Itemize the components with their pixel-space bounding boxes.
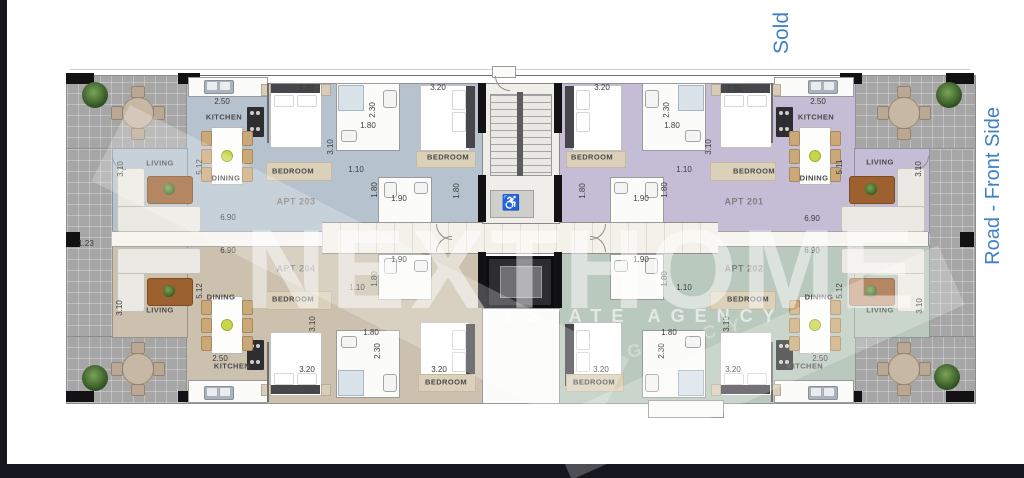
shower-icon <box>338 85 364 111</box>
shower-icon <box>678 85 704 111</box>
chair-icon <box>201 318 212 333</box>
dim-label: 6.90 <box>220 247 236 255</box>
terrace-chair-icon <box>111 362 123 376</box>
toilet-icon <box>645 90 659 108</box>
terrace-chair-icon <box>877 106 889 120</box>
room-label: LIVING <box>866 158 893 166</box>
terrace-chair-icon <box>919 106 931 120</box>
room-label: BEDROOM <box>573 378 615 386</box>
dim-label: 2.30 <box>658 343 666 359</box>
chair-icon <box>789 131 800 146</box>
wheelchair-icon: ♿ <box>502 196 521 211</box>
basin-icon <box>614 260 628 272</box>
room-label: LIVING <box>146 306 173 314</box>
chair-icon <box>830 336 841 351</box>
dim-label: 1.80 <box>664 122 680 130</box>
basin-icon <box>685 336 701 348</box>
wall-block <box>960 232 974 247</box>
toilet-icon <box>383 90 397 108</box>
terrace-chair-icon <box>897 128 911 140</box>
dim-label: 1.80 <box>371 182 379 198</box>
plate-icon <box>221 319 233 331</box>
apartment-label: APT 202 <box>724 265 763 274</box>
dim-label: 1.80 <box>661 182 669 198</box>
dim-label: 1.90 <box>391 256 407 264</box>
basin-icon <box>341 336 357 348</box>
room-label: BEDROOM <box>733 167 775 175</box>
terrace-chair-icon <box>111 106 123 120</box>
toilet-icon <box>383 374 397 392</box>
pillow-icon <box>747 373 767 385</box>
interior-wall <box>267 342 269 402</box>
shower-icon <box>338 370 364 396</box>
pillow-icon <box>452 112 466 132</box>
sofa-icon <box>841 248 925 274</box>
basin-icon <box>414 182 428 194</box>
pillow-icon <box>747 95 767 107</box>
dim-label: 3.20 <box>725 366 741 374</box>
toilet-icon <box>645 374 659 392</box>
room-label: DINING <box>212 174 241 182</box>
bed-headboard <box>270 385 320 394</box>
sofa-icon <box>841 206 925 232</box>
dim-label: 1.80 <box>360 122 376 130</box>
dim-label: 3.20 <box>298 85 314 93</box>
chair-icon <box>242 300 253 315</box>
dim-label: 2.30 <box>369 102 377 118</box>
dim-label: 1.80 <box>371 271 379 287</box>
room-label: KITCHEN <box>798 113 834 121</box>
nightstand-icon <box>711 384 721 396</box>
dim-label: 1.80 <box>661 271 669 287</box>
plant-icon <box>163 183 175 195</box>
basin-icon <box>685 130 701 142</box>
dim-label: 3.10 <box>117 161 125 177</box>
chair-icon <box>830 300 841 315</box>
tree-icon <box>934 364 960 390</box>
interior-wall <box>771 83 773 143</box>
dim-label: 3.20 <box>299 366 315 374</box>
pillow-icon <box>452 330 466 350</box>
room-label: DINING <box>207 293 236 301</box>
kitchen-sink-icon <box>204 80 234 94</box>
dim-label: 1.10 <box>676 284 692 292</box>
chair-icon <box>201 336 212 351</box>
basin-icon <box>341 130 357 142</box>
stair-rail <box>517 92 523 176</box>
room-label: BEDROOM <box>425 378 467 386</box>
plant-icon <box>163 285 175 297</box>
dim-label: 3.20 <box>431 366 447 374</box>
bed-headboard <box>466 86 475 148</box>
terrace-chair-icon <box>131 342 145 354</box>
road-front-side-label: Road - Front Side <box>982 107 1005 265</box>
room-label: BEDROOM <box>571 153 613 161</box>
wall-block <box>66 391 94 402</box>
dim-label: 5.12 <box>196 159 204 175</box>
dim-label: 3.10 <box>309 316 317 332</box>
pillow-icon <box>297 95 317 107</box>
apartment-label: APT 201 <box>724 198 763 207</box>
interior-wall <box>771 342 773 402</box>
dim-label: 3.10 <box>116 300 124 316</box>
plate-icon <box>809 319 821 331</box>
dim-label: 2.50 <box>810 98 826 106</box>
pillow-icon <box>576 330 590 350</box>
dim-label: 3.20 <box>593 366 609 374</box>
terrace-chair-icon <box>131 128 145 140</box>
terrace-chair-icon <box>153 362 165 376</box>
pillow-icon <box>274 95 294 107</box>
chair-icon <box>789 167 800 182</box>
pillow-icon <box>452 90 466 110</box>
chair-icon <box>242 336 253 351</box>
pillow-icon <box>576 112 590 132</box>
elevator-car <box>500 266 542 298</box>
plate-icon <box>809 150 821 162</box>
wall-block <box>478 175 486 222</box>
nightstand-icon <box>321 384 331 396</box>
dim-label: 1.10 <box>349 284 365 292</box>
chair-icon <box>789 318 800 333</box>
room-label: BEDROOM <box>272 295 314 303</box>
room-label: DINING <box>805 293 834 301</box>
kitchen-sink-icon <box>204 386 234 400</box>
pillow-icon <box>724 95 744 107</box>
kitchen-sink-icon <box>808 80 838 94</box>
kitchen-sink-icon <box>808 386 838 400</box>
bed-headboard <box>720 385 770 394</box>
plant-icon <box>865 183 877 195</box>
terrace-chair-icon <box>897 86 911 98</box>
tree-icon <box>82 365 108 391</box>
dim-label: 2.50 <box>214 98 230 106</box>
wall-block <box>554 83 562 133</box>
dim-label: 6.90 <box>804 247 820 255</box>
terrace-table-icon <box>122 97 154 129</box>
room-label: BEDROOM <box>727 295 769 303</box>
terrace-chair-icon <box>131 86 145 98</box>
room-label: KITCHEN <box>787 362 823 370</box>
chair-icon <box>789 300 800 315</box>
nightstand-icon <box>321 84 331 96</box>
tree-icon <box>936 82 962 108</box>
wall-block <box>478 252 486 308</box>
shower-icon <box>678 370 704 396</box>
room-label: KITCHEN <box>214 362 250 370</box>
dim-label: 2.30 <box>374 343 382 359</box>
terrace-chair-icon <box>897 342 911 354</box>
corridor <box>322 222 718 254</box>
dim-label: 3.10 <box>723 316 731 332</box>
basin-icon <box>614 182 628 194</box>
chair-icon <box>242 318 253 333</box>
pillow-icon <box>576 90 590 110</box>
apartment-label: APT 203 <box>276 198 315 207</box>
terrace-table-icon <box>888 97 920 129</box>
pillow-icon <box>297 373 317 385</box>
dim-label: 3.10 <box>327 139 335 155</box>
dim-label: 3.10 <box>915 161 923 177</box>
sofa-icon <box>117 206 201 232</box>
dim-label: 6.90 <box>804 215 820 223</box>
sofa-icon <box>117 248 201 274</box>
dim-label: 1.10 <box>348 166 364 174</box>
plate-icon <box>221 150 233 162</box>
dim-label: 1.80 <box>363 329 379 337</box>
nightstand-icon <box>261 384 271 396</box>
terrace-chair-icon <box>877 362 889 376</box>
dim-label: 3.20 <box>430 84 446 92</box>
pillow-icon <box>274 373 294 385</box>
terrace-chair-icon <box>897 384 911 396</box>
room-label: DINING <box>800 174 829 182</box>
nightstand-icon <box>261 84 271 96</box>
sold-label: Sold <box>770 12 794 54</box>
chair-icon <box>789 149 800 164</box>
dim-label: 5.12 <box>836 283 844 299</box>
dim-label: 1.90 <box>633 256 649 264</box>
dim-label: 1.80 <box>453 183 461 199</box>
pillow-icon <box>576 352 590 372</box>
lobby <box>482 308 560 404</box>
terrace-chair-icon <box>153 106 165 120</box>
basin-icon <box>414 260 428 272</box>
wall-block <box>478 83 486 133</box>
room-label: BEDROOM <box>272 167 314 175</box>
dim-label: 1.23 <box>78 240 94 248</box>
room-label: LIVING <box>866 306 893 314</box>
chair-icon <box>830 131 841 146</box>
bed-icon <box>720 84 772 148</box>
wall-block <box>946 391 974 402</box>
dim-label: 3.20 <box>594 84 610 92</box>
terrace-chair-icon <box>131 384 145 396</box>
dim-label: 3.10 <box>705 139 713 155</box>
terrace-table-icon <box>122 353 154 385</box>
tree-icon <box>82 82 108 108</box>
wall-block <box>554 175 562 222</box>
dim-label: 1.80 <box>661 329 677 337</box>
chair-icon <box>242 149 253 164</box>
entry-tab-bottom <box>648 400 724 418</box>
chair-icon <box>201 300 212 315</box>
pillow-icon <box>452 352 466 372</box>
room-label: LIVING <box>146 159 173 167</box>
floor-plan: ♿ <box>0 0 1024 478</box>
dim-label: 2.30 <box>663 102 671 118</box>
floor-plan-screenshot: ♿ <box>0 0 1024 478</box>
dim-label: 3.10 <box>916 298 924 314</box>
dim-label: 1.90 <box>391 195 407 203</box>
chair-icon <box>201 131 212 146</box>
room-label: KITCHEN <box>206 113 242 121</box>
dim-label: 1.90 <box>633 195 649 203</box>
dim-label: 5.11 <box>836 160 844 175</box>
chair-icon <box>830 318 841 333</box>
eave-line <box>70 69 970 70</box>
dim-label: 1.80 <box>579 183 587 199</box>
pillow-icon <box>724 373 744 385</box>
interior-wall <box>267 83 269 143</box>
terrace-table-icon <box>888 353 920 385</box>
dim-label: 5.12 <box>196 283 204 299</box>
room-label: BEDROOM <box>427 153 469 161</box>
dim-label: 3.20 <box>726 85 742 93</box>
terrace-chair-icon <box>919 362 931 376</box>
bed-icon <box>270 84 322 148</box>
dim-label: 1.10 <box>676 166 692 174</box>
chair-icon <box>242 167 253 182</box>
nightstand-icon <box>711 84 721 96</box>
plant-icon <box>865 285 877 297</box>
wall-block <box>554 252 562 308</box>
bed-headboard <box>565 86 574 148</box>
dim-label: 6.90 <box>220 214 236 222</box>
apartment-label: APT 204 <box>276 265 315 274</box>
chair-icon <box>242 131 253 146</box>
chair-icon <box>789 336 800 351</box>
